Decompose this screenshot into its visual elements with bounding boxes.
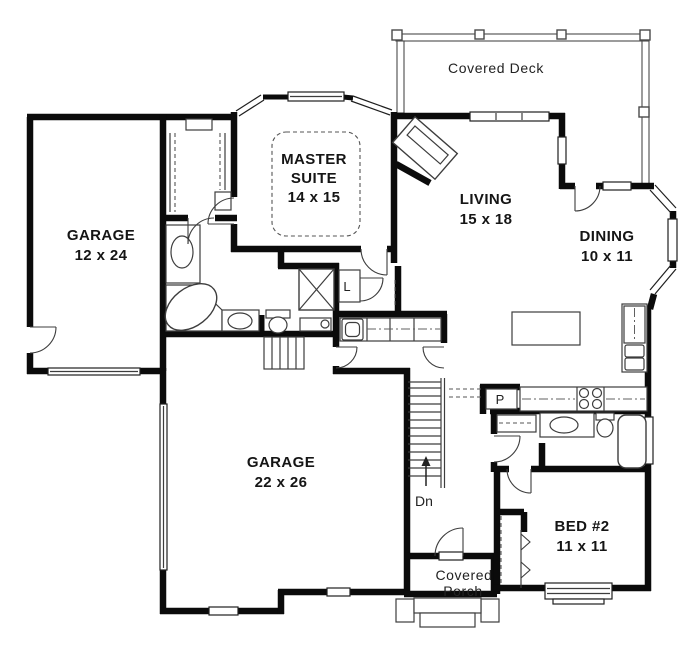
- closet-cabinet: [215, 192, 231, 210]
- master-closet: [170, 119, 231, 212]
- master-suite-door: [361, 249, 387, 275]
- label-pantry: P: [496, 392, 505, 407]
- label-linen: L: [343, 279, 350, 294]
- wall-oven-upper: [625, 345, 644, 357]
- garage-window: [209, 607, 238, 615]
- closet-shelf: [186, 119, 212, 130]
- laundry-counter: [340, 318, 441, 341]
- label-garage-main-dims: 22 x 26: [255, 474, 308, 491]
- sink-1: [171, 236, 193, 268]
- bath2-door: [494, 436, 520, 462]
- deck-post: [392, 30, 402, 40]
- kitchen: [449, 304, 647, 411]
- sink-3: [550, 417, 578, 433]
- label-bed2: BED #2: [555, 518, 610, 535]
- deck-post: [640, 30, 650, 40]
- deck-post: [639, 107, 649, 117]
- hall-door: [423, 347, 444, 368]
- living-east-window: [558, 137, 566, 164]
- label-living-dims: 15 x 18: [460, 211, 513, 228]
- floor-plan-page: Covered Deck MASTER SUITE 14 x 15 LIVING…: [0, 0, 700, 650]
- front-door-threshold: [439, 552, 463, 560]
- toilet-2-bowl: [597, 419, 613, 437]
- garage-side-door: [30, 327, 56, 353]
- windows: [48, 92, 677, 615]
- label-covered-deck: Covered Deck: [448, 60, 544, 76]
- master-bay-window-top: [288, 92, 344, 101]
- label-porch-2: Porch: [443, 583, 483, 599]
- garage-entry-door: [336, 347, 357, 368]
- label-bed2-dims: 11 x 11: [556, 538, 607, 555]
- porch-steps: [396, 598, 499, 627]
- master-bay-window-left: [236, 95, 264, 116]
- label-master-2: SUITE: [291, 170, 337, 187]
- dining-bay-window: [668, 219, 677, 261]
- label-garage-front: GARAGE: [67, 227, 135, 244]
- wall-oven-lower: [625, 358, 644, 370]
- dining-window: [603, 182, 631, 190]
- label-living: LIVING: [460, 191, 512, 208]
- garage-main-door-opening: [160, 404, 167, 570]
- label-dining-dims: 10 x 11: [581, 248, 633, 265]
- bed2-door: [507, 469, 531, 493]
- deck-post: [475, 30, 484, 39]
- deck-post: [557, 30, 566, 39]
- master-bay-window-right: [351, 96, 392, 115]
- cabinet-knob: [321, 320, 329, 328]
- sink-2: [228, 313, 252, 329]
- label-master-dims: 14 x 15: [288, 189, 341, 206]
- bed2-window: [545, 583, 612, 604]
- label-garage-front-dims: 12 x 24: [75, 247, 128, 264]
- stairs-garage: [264, 337, 304, 369]
- master-bath-door: [360, 278, 383, 301]
- garage-front-door-opening: [48, 368, 140, 375]
- label-garage-main: GARAGE: [247, 454, 315, 471]
- kitchen-opening-dashes: [449, 389, 481, 397]
- dining-bay-window-lower: [650, 265, 676, 294]
- label-porch-1: Covered: [435, 567, 492, 583]
- kitchen-island: [512, 312, 580, 345]
- master-bath: [156, 225, 360, 340]
- stairs-main: [408, 378, 445, 488]
- floor-plan-drawing: Covered Deck MASTER SUITE 14 x 15 LIVING…: [0, 0, 700, 650]
- label-stairs-dn: Dn: [415, 493, 433, 509]
- toilet-bowl: [269, 317, 287, 333]
- living-north-window: [470, 112, 549, 121]
- exterior-walls: [27, 97, 673, 614]
- garage-window: [327, 588, 350, 596]
- deck-dining-door: [575, 186, 600, 211]
- label-dining: DINING: [580, 228, 635, 245]
- label-master-1: MASTER: [281, 151, 347, 168]
- shower: [299, 269, 334, 310]
- bathtub: [618, 415, 646, 468]
